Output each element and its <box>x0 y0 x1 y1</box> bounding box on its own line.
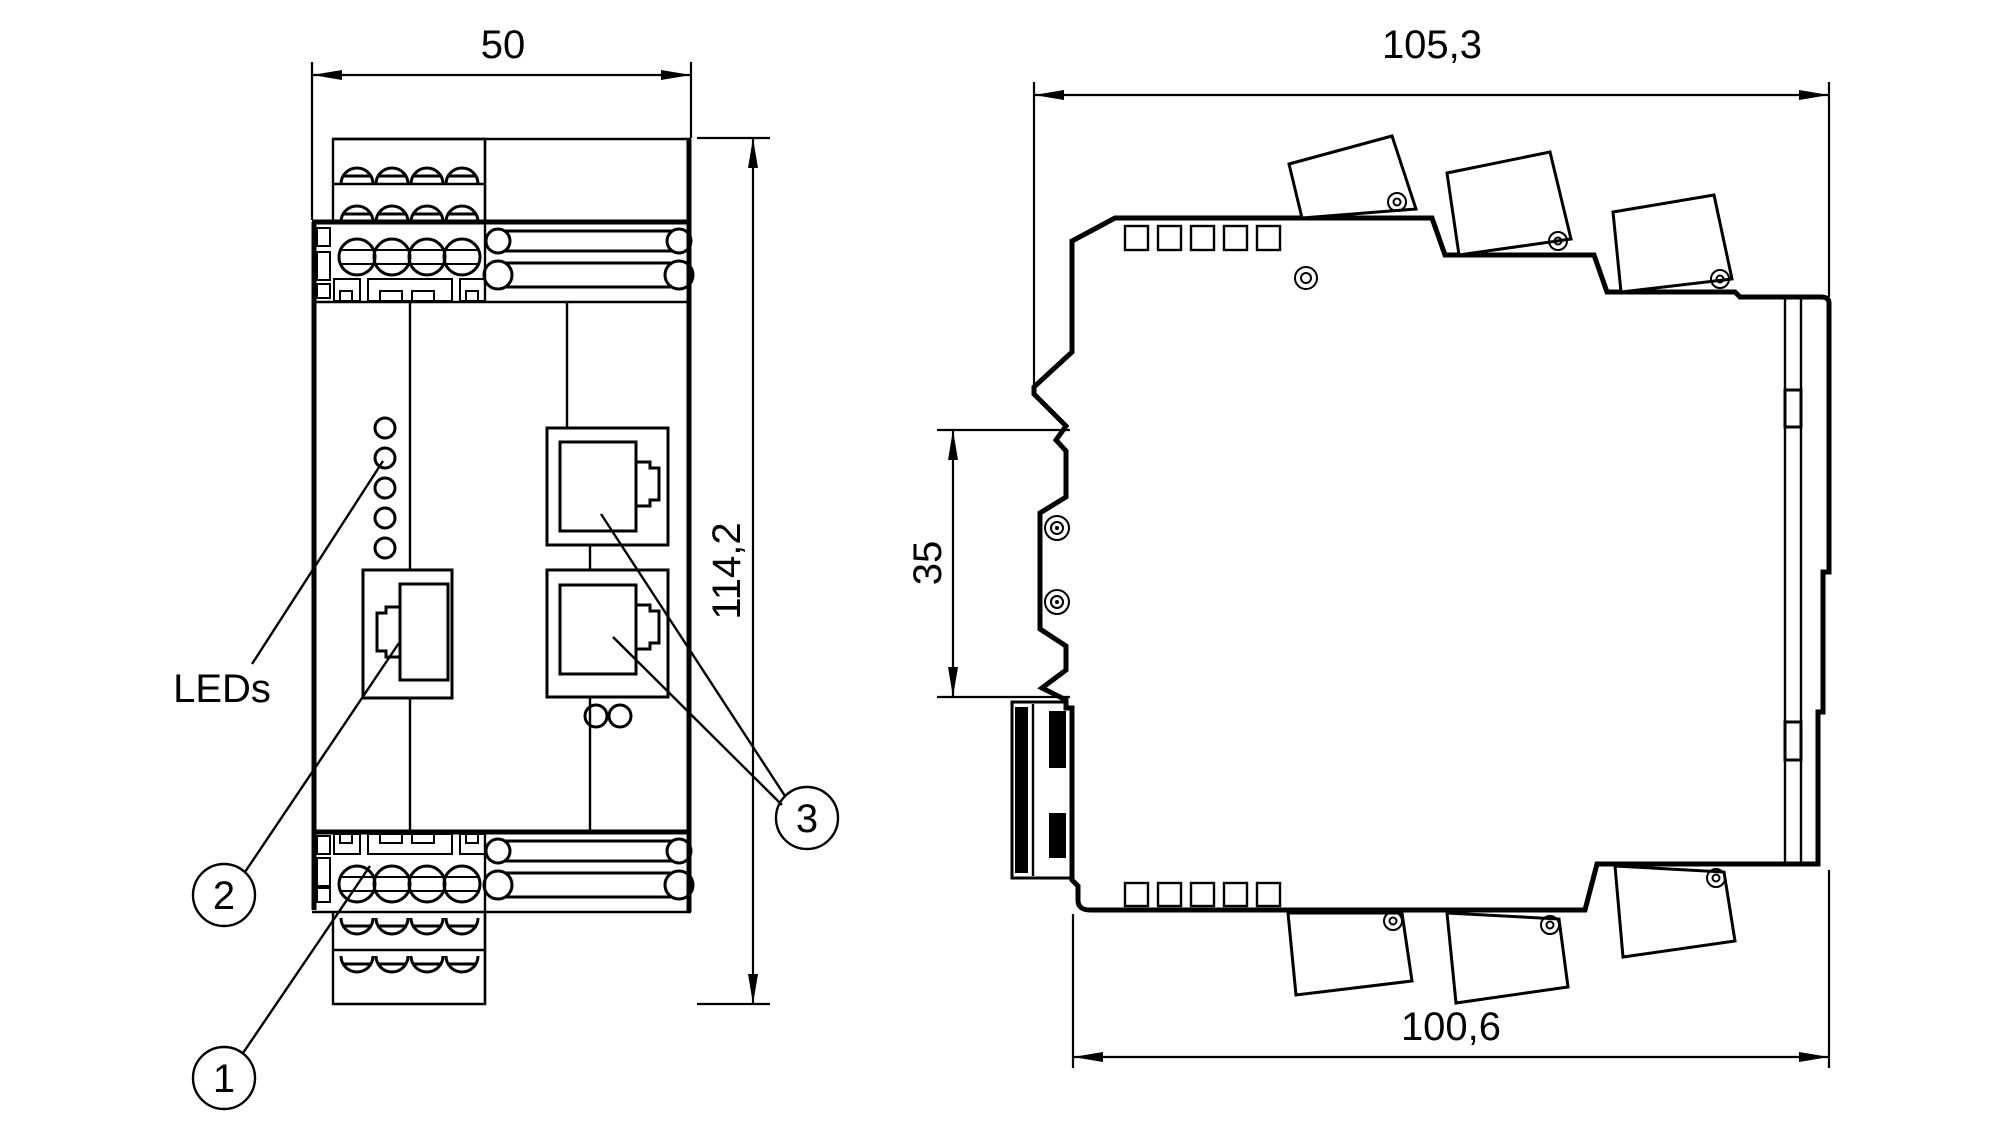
dimension-front-width: 50 <box>312 23 691 220</box>
front-view: 50 114,2 <box>173 23 838 1109</box>
clamp-row-4 <box>341 956 478 972</box>
led-indicators <box>375 418 395 558</box>
housing-profile <box>1034 218 1829 910</box>
dim-label-front-height: 114,2 <box>705 522 749 619</box>
din-rail-clip <box>1012 702 1072 878</box>
callout-3-number: 3 <box>796 797 818 841</box>
dim-label-housing-depth: 100,6 <box>1401 1005 1501 1049</box>
link-led-pair <box>585 705 631 727</box>
screw-terminals-bottom <box>339 866 480 902</box>
terminal-block-bottom <box>317 832 693 1004</box>
dimension-din-rail: 35 <box>906 430 1070 697</box>
terminal-levers-bottom <box>1288 866 1735 1003</box>
rj45-port-right-top <box>547 428 668 545</box>
din-notch-screws <box>1045 516 1069 614</box>
dim-label-din-rail: 35 <box>906 541 950 586</box>
clamp-row-3 <box>341 918 478 934</box>
dimension-front-height: 114,2 <box>697 138 770 1004</box>
mounting-tabs-bottom <box>334 834 485 854</box>
terminal-levers-top <box>1289 136 1732 292</box>
relay-bars-top <box>484 229 693 289</box>
side-clips-top <box>317 228 330 298</box>
clamp-row-1 <box>341 168 478 184</box>
vent-slots-top <box>1125 226 1280 250</box>
callout-1-number: 1 <box>213 1057 235 1101</box>
mounting-tabs-top <box>334 279 485 301</box>
housing-screw-top <box>1295 267 1317 289</box>
dim-label-side-depth: 105,3 <box>1382 23 1482 67</box>
dim-label-front-width: 50 <box>481 23 526 67</box>
leds-label-text: LEDs <box>173 667 271 711</box>
label-leds: LEDs <box>173 461 383 711</box>
technical-drawing-page: 50 114,2 <box>0 0 2000 1127</box>
vent-slots-bottom <box>1125 883 1280 906</box>
module-front-body <box>312 139 691 912</box>
callout-2-number: 2 <box>213 874 235 918</box>
side-view: 105,3 35 100,6 <box>906 23 1829 1068</box>
screw-terminals-top <box>339 239 480 275</box>
side-clips-bottom <box>317 836 330 902</box>
relay-bars-bottom <box>484 839 693 899</box>
front-panel-lines <box>1785 297 1801 864</box>
